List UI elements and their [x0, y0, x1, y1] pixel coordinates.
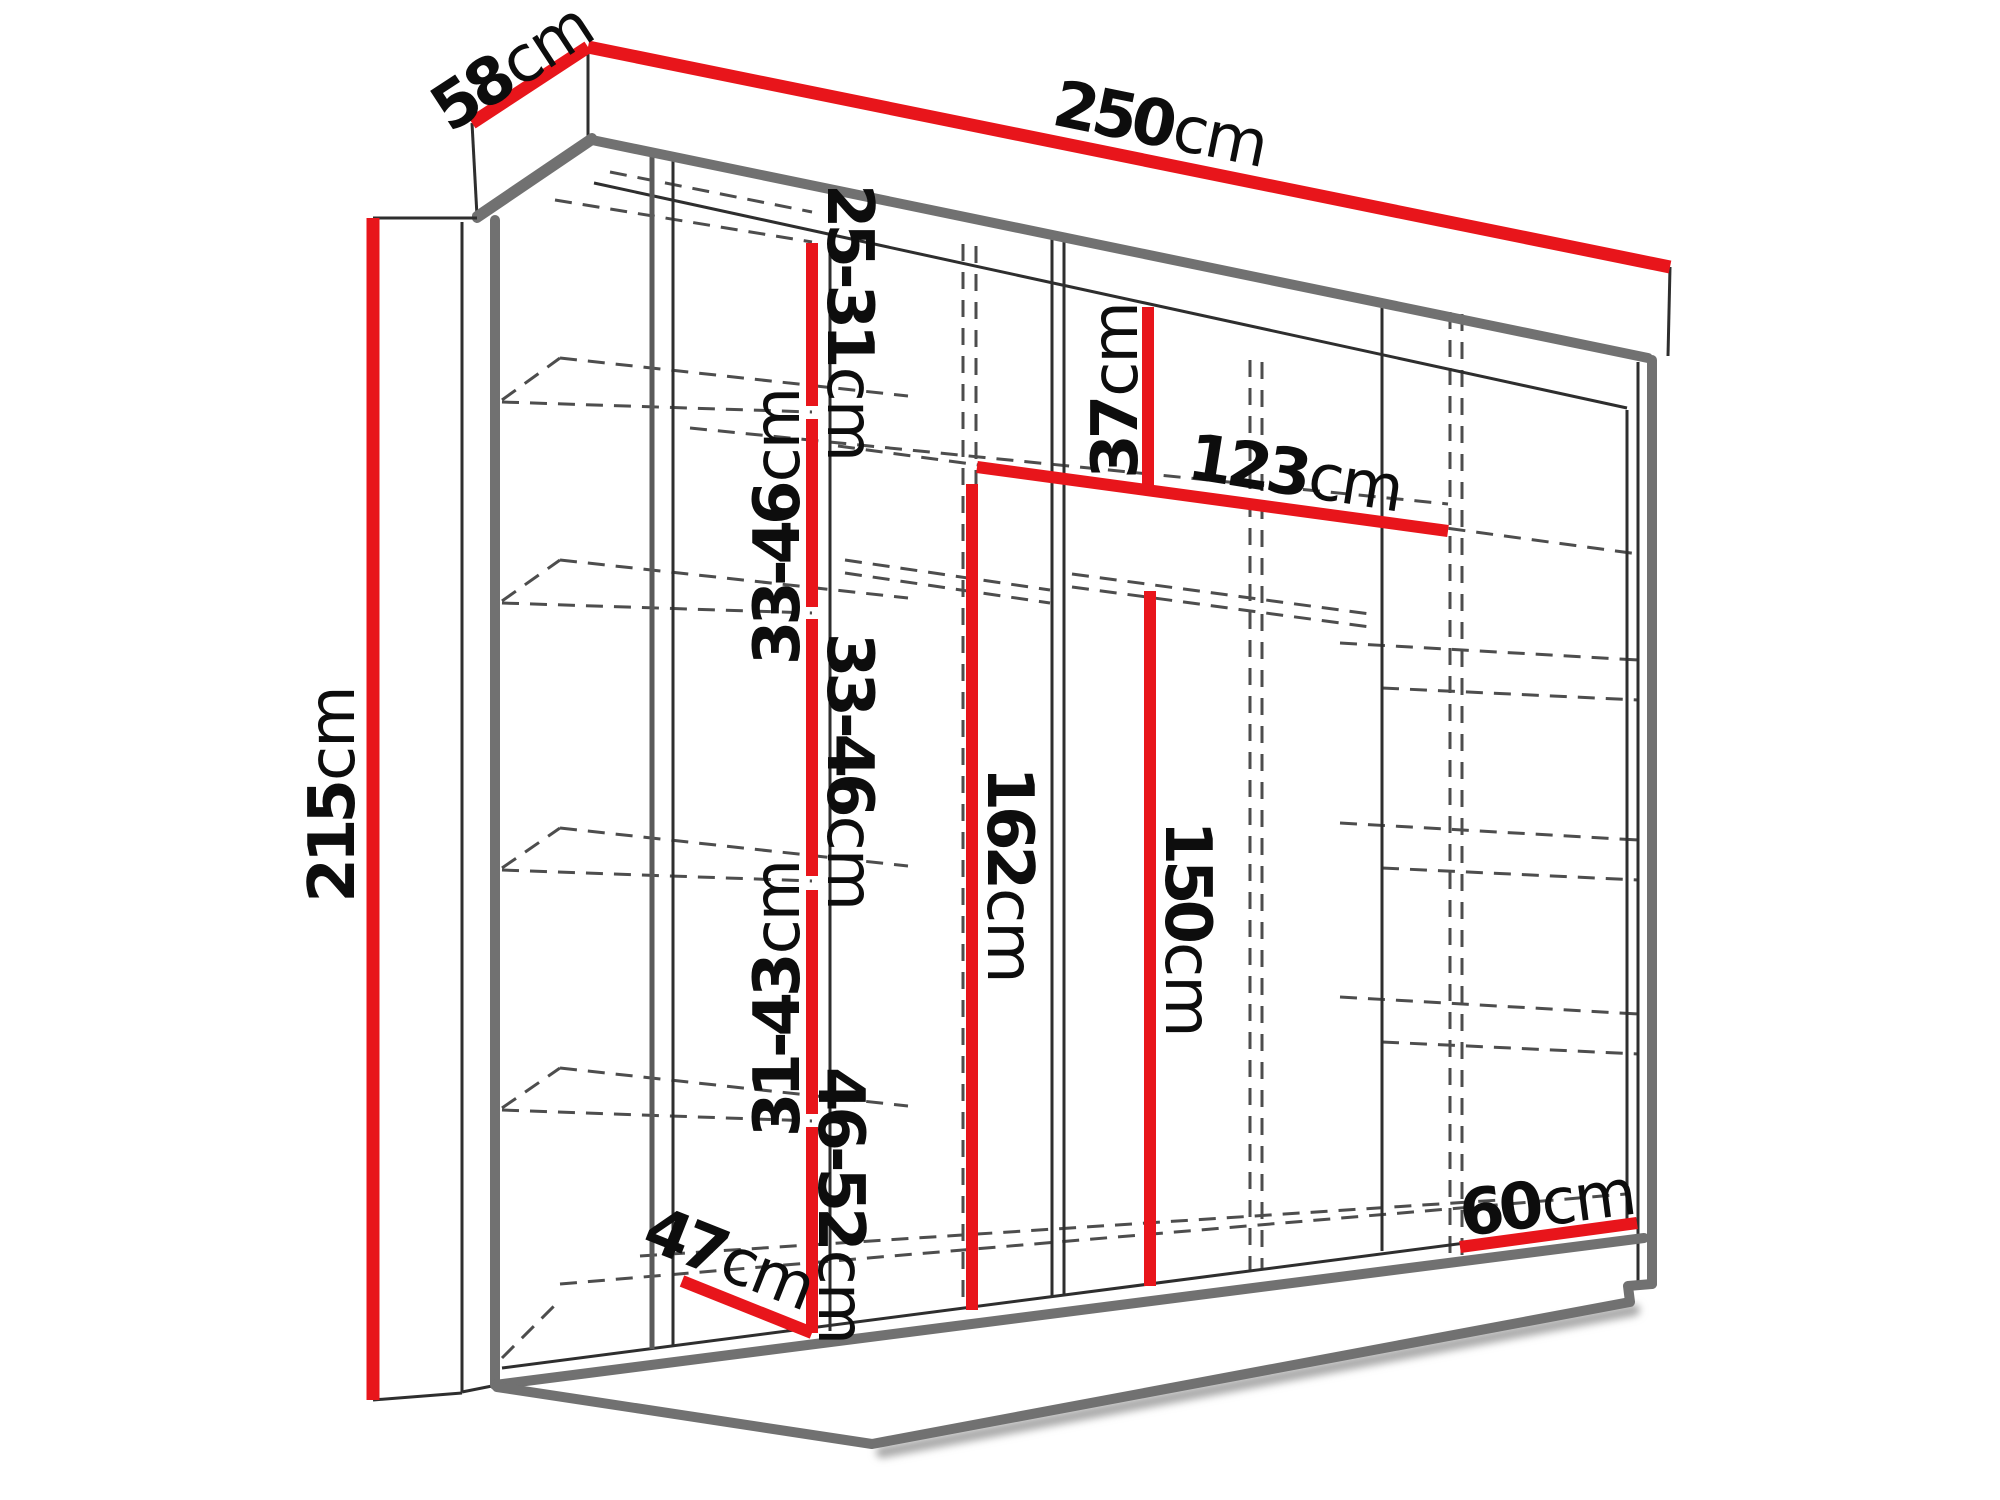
crown-right-edge	[1668, 267, 1670, 356]
diagram-canvas: 58cm 250cm 215cm 25-31cm 33-46cm 33-46cm…	[0, 0, 2000, 1500]
dim-label-middle-top-gap: 37cm	[1079, 303, 1153, 479]
wardrobe-dimension-diagram: 58cm 250cm 215cm 25-31cm 33-46cm 33-46cm…	[0, 0, 2000, 1500]
dim-label-left-gap-2: 33-46cm	[741, 389, 815, 665]
dim-label-left-gap-3: 33-46cm	[812, 633, 886, 909]
dim-label-inner-height-left: 162cm	[972, 766, 1046, 981]
dim-label-middle-shelf-width: 123cm	[1183, 421, 1407, 528]
dim-label-side-height: 215cm	[296, 687, 370, 902]
bottom-shadow	[882, 1310, 1634, 1452]
dim-label-left-gap-1: 25-31cm	[812, 184, 886, 460]
dim-label-inner-height-right: 150cm	[1150, 820, 1224, 1035]
height-tick-bottom	[373, 1393, 462, 1400]
dim-label-left-gap-5: 46-52cm	[803, 1067, 877, 1343]
